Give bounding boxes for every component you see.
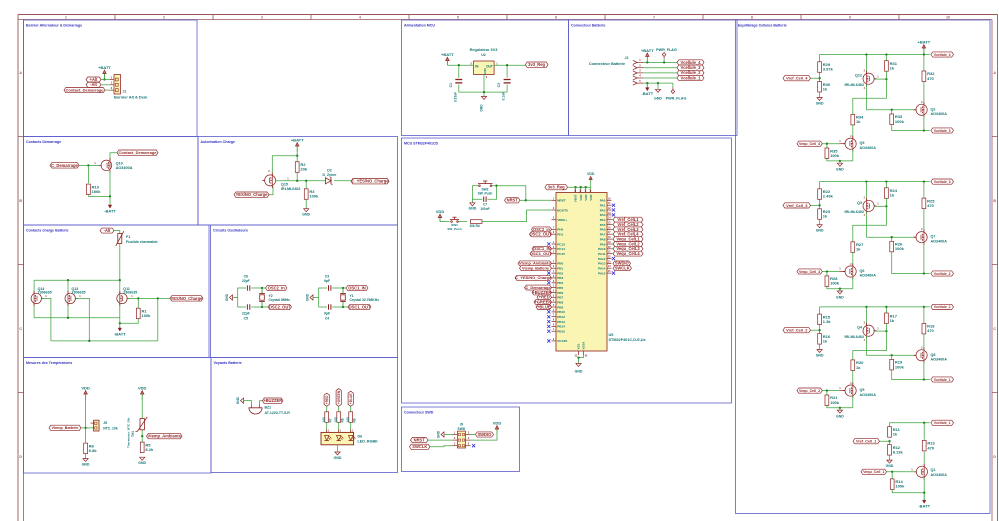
svg-text:100k: 100k (895, 364, 905, 369)
svg-text:PA7: PA7 (600, 233, 606, 237)
svg-text:Contacts charge Batterie: Contacts charge Batterie (26, 229, 69, 233)
svg-text:7306635: 7306635 (38, 291, 52, 295)
svg-text:GND: GND (469, 207, 477, 211)
svg-text:Vref_Cell_3: Vref_Cell_3 (786, 203, 808, 208)
svg-text:100k: 100k (895, 246, 905, 251)
svg-text:+BATT: +BATT (641, 48, 654, 53)
svg-text:A: A (19, 71, 22, 75)
svg-text:+BUZZER: +BUZZER (263, 398, 282, 403)
svg-text:STM32F401C,D-E,Ux: STM32F401C,D-E,Ux (609, 338, 647, 342)
svg-text:Circuits Oscillateurs: Circuits Oscillateurs (213, 229, 248, 233)
svg-text:Q3: Q3 (857, 201, 862, 205)
svg-text:Bornier Alternateur & Démarrag: Bornier Alternateur & Démarrage (26, 24, 82, 28)
svg-text:VSS: VSS (577, 344, 581, 350)
svg-text:GND: GND (302, 213, 310, 217)
svg-text:100: 100 (334, 417, 338, 423)
svg-text:C3: C3 (497, 83, 501, 87)
svg-text:Autorisation Charge: Autorisation Charge (201, 140, 236, 144)
svg-text:PA4: PA4 (600, 218, 606, 222)
svg-text:OUT: OUT (486, 65, 493, 69)
svg-text:PA12: PA12 (598, 257, 606, 261)
svg-text:Vtemp_Batterie: Vtemp_Batterie (52, 426, 79, 430)
svg-text:AO3400A: AO3400A (860, 274, 877, 278)
svg-text:U2: U2 (481, 53, 486, 57)
svg-text:100k: 100k (142, 313, 152, 318)
svg-text:PA15: PA15 (598, 271, 606, 275)
svg-text:C: C (19, 327, 22, 331)
svg-text:Connecteur Batterie: Connecteur Batterie (571, 24, 605, 28)
svg-text:Fusible réarmable: Fusible réarmable (126, 240, 158, 244)
svg-text:PB5: PB5 (557, 286, 563, 290)
svg-text:SW_Push: SW_Push (447, 227, 461, 231)
svg-text:Vequ_Cell_4: Vequ_Cell_4 (799, 142, 820, 146)
svg-text:OSC2_OUT: OSC2_OUT (529, 232, 552, 237)
svg-text:J9: J9 (460, 423, 464, 427)
svg-text:R8: R8 (341, 418, 345, 422)
svg-text:IRLML6402: IRLML6402 (845, 335, 864, 339)
svg-text:AO3400A: AO3400A (860, 146, 877, 150)
svg-text:PA8: PA8 (600, 237, 606, 241)
svg-text:SWCLK: SWCLK (412, 444, 427, 449)
svg-text:PA13: PA13 (598, 262, 606, 266)
svg-text:J8: J8 (103, 421, 107, 425)
svg-text:PB7: PB7 (557, 296, 563, 300)
svg-text:OSC1_OUT: OSC1_OUT (530, 251, 552, 256)
svg-text:1k: 1k (823, 86, 828, 91)
svg-text:+BATT: +BATT (98, 65, 111, 70)
svg-text:100k: 100k (830, 153, 840, 158)
svg-text:Contacts Démarrage: Contacts Démarrage (26, 140, 61, 144)
svg-text:GND: GND (225, 293, 229, 301)
svg-text:Q6: Q6 (860, 269, 865, 273)
svg-text:PA11: PA11 (598, 252, 606, 256)
svg-text:GND: GND (816, 229, 824, 233)
svg-text:D_Zener: D_Zener (322, 173, 337, 177)
svg-text:Q5: Q5 (860, 388, 865, 392)
svg-text:NRST: NRST (557, 199, 566, 203)
svg-text:VDD: VDD (81, 385, 90, 390)
svg-text:Vcellule_4: Vcellule_4 (934, 53, 951, 57)
svg-text:0.33uF: 0.33uF (453, 92, 457, 102)
svg-text:-BATT: -BATT (114, 331, 126, 336)
svg-text:GND: GND (82, 462, 90, 466)
svg-text:+BLUE: +BLUE (349, 394, 353, 405)
svg-text:Vcellule_3: Vcellule_3 (934, 129, 951, 133)
svg-text:1k: 1k (823, 338, 828, 343)
svg-text:3.97k: 3.97k (823, 67, 834, 72)
svg-text:PB12: PB12 (557, 315, 565, 319)
svg-text:7306635: 7306635 (123, 291, 137, 295)
svg-text:PA9: PA9 (600, 242, 606, 246)
svg-text:NRST: NRST (507, 198, 519, 203)
svg-text:GND: GND (836, 168, 844, 172)
svg-text:22pF: 22pF (242, 312, 250, 316)
svg-text:Mesures des Températures: Mesures des Températures (26, 361, 72, 365)
svg-text:GND: GND (236, 396, 240, 404)
svg-text:Connecteur SWD: Connecteur SWD (404, 411, 434, 415)
svg-text:Q8: Q8 (931, 353, 936, 357)
svg-text:VDD: VDD (579, 195, 583, 201)
svg-text:100: 100 (346, 417, 350, 423)
svg-text:GND: GND (437, 430, 441, 438)
svg-text:PA2: PA2 (600, 208, 606, 212)
svg-text:C_Demarrage: C_Demarrage (51, 163, 78, 168)
svg-text:100k: 100k (830, 400, 840, 405)
svg-text:VDD: VDD (589, 195, 593, 201)
svg-text:C_YES/NO_Charge: C_YES/NO_Charge (515, 275, 552, 280)
svg-text:9pF: 9pF (324, 312, 330, 316)
svg-text:PB14: PB14 (557, 325, 565, 329)
svg-text:C3: C3 (325, 275, 329, 279)
svg-text:100k: 100k (895, 484, 905, 489)
svg-text:1k: 1k (856, 119, 861, 124)
svg-text:Vequ_CelL4: Vequ_CelL4 (616, 251, 640, 256)
svg-text:GND: GND (483, 67, 487, 75)
svg-text:PA5: PA5 (600, 223, 606, 227)
svg-text:PB1: PB1 (557, 267, 563, 271)
svg-text:1k: 1k (856, 365, 861, 370)
svg-text:AT-1220-TT-9-R: AT-1220-TT-9-R (265, 411, 291, 415)
svg-text:PA1: PA1 (600, 204, 606, 208)
svg-text:B: B (19, 199, 22, 203)
svg-text:GND: GND (480, 104, 484, 112)
svg-text:PH1: PH1 (557, 233, 563, 237)
svg-text:VDD: VDD (584, 195, 588, 201)
svg-text:NTC_10k: NTC_10k (103, 426, 118, 430)
svg-text:GND: GND (575, 370, 583, 374)
svg-text:Vcellule_1: Vcellule_1 (934, 378, 951, 382)
svg-text:+BATT: +BATT (291, 137, 304, 142)
svg-text:AO3400A: AO3400A (931, 240, 948, 244)
svg-text:PB8: PB8 (557, 300, 563, 304)
svg-text:D6: D6 (358, 435, 363, 439)
svg-text:Q15: Q15 (281, 182, 288, 186)
svg-text:-BATT: -BATT (104, 208, 116, 213)
svg-text:PB13: PB13 (557, 320, 565, 324)
svg-text:0.1uF: 0.1uF (501, 92, 505, 100)
svg-text:+RED: +RED (325, 395, 329, 404)
svg-text:SW_Push: SW_Push (478, 191, 493, 195)
svg-text:VDD: VDD (587, 172, 595, 176)
svg-text:GND: GND (836, 415, 844, 419)
svg-text:PB9: PB9 (557, 305, 563, 309)
svg-text:6: 6 (555, 15, 557, 19)
svg-text:7306635: 7306635 (72, 291, 86, 295)
svg-text:PWR_FLAG: PWR_FLAG (666, 96, 687, 100)
svg-text:PB10: PB10 (557, 310, 565, 314)
svg-text:VREF+: VREF+ (557, 218, 567, 222)
svg-text:PWR_FLAG: PWR_FLAG (656, 48, 677, 52)
svg-text:PC14: PC14 (557, 247, 565, 251)
svg-text:VDD: VDD (436, 209, 445, 214)
svg-text:AO3400A: AO3400A (931, 358, 948, 362)
svg-text:D2: D2 (327, 169, 332, 173)
svg-text:J1: J1 (123, 90, 127, 94)
svg-text:9: 9 (849, 15, 851, 19)
svg-text:D: D (19, 455, 22, 459)
svg-text:Vcellule_1: Vcellule_1 (934, 421, 951, 425)
svg-text:-Alt: -Alt (90, 82, 97, 87)
svg-text:C5: C5 (244, 317, 248, 321)
svg-text:IRLML6402: IRLML6402 (845, 83, 864, 87)
svg-text:Q10: Q10 (116, 162, 123, 166)
svg-text:C7: C7 (483, 203, 487, 207)
svg-text:-BATT: -BATT (918, 504, 930, 509)
svg-text:+GREEN: +GREEN (337, 390, 341, 404)
svg-text:VBAT: VBAT (574, 194, 578, 202)
svg-text:NRST: NRST (414, 438, 426, 443)
svg-text:VDD: VDD (493, 420, 502, 425)
svg-text:Q7: Q7 (931, 235, 936, 239)
svg-text:AO3400A: AO3400A (931, 112, 948, 116)
svg-text:IRLML6402: IRLML6402 (281, 187, 300, 191)
svg-text:BZ1: BZ1 (265, 406, 272, 410)
svg-text:GND: GND (816, 101, 824, 105)
svg-text:Alimentation MCU: Alimentation MCU (404, 24, 435, 28)
svg-text:GND: GND (306, 293, 310, 301)
svg-text:7: 7 (653, 15, 655, 19)
svg-text:A: A (993, 71, 996, 75)
svg-text:Equilibrage Cellules Batterie: Equilibrage Cellules Batterie (738, 24, 787, 28)
svg-text:YES/NO_Charge: YES/NO_Charge (171, 296, 204, 301)
svg-text:D: D (993, 455, 996, 459)
svg-text:F1: F1 (126, 235, 130, 239)
svg-text:1.3k: 1.3k (823, 319, 832, 324)
svg-text:Connecteur Batterie: Connecteur Batterie (589, 62, 625, 66)
svg-text:1k: 1k (890, 318, 895, 323)
svg-text:5: 5 (457, 15, 459, 19)
svg-text:3v3_Reg: 3v3_Reg (548, 185, 565, 190)
svg-text:2: 2 (163, 15, 165, 19)
svg-text:-BATT: -BATT (641, 91, 653, 96)
svg-text:Bornier Alt & Dem: Bornier Alt & Dem (114, 95, 148, 100)
svg-text:Q9: Q9 (860, 141, 865, 145)
svg-text:10: 10 (946, 15, 950, 19)
svg-text:PB2: PB2 (557, 271, 563, 275)
svg-text:Vequ_Cell_1: Vequ_Cell_1 (863, 470, 884, 474)
svg-text:8.2k: 8.2k (145, 447, 154, 452)
svg-text:Crystal 8MHz: Crystal 8MHz (269, 298, 291, 302)
svg-text:PH0: PH0 (557, 228, 563, 232)
svg-text:Vcellule_3: Vcellule_3 (934, 180, 951, 184)
svg-text:PB4: PB4 (557, 281, 563, 285)
svg-text:Voyants Batterie: Voyants Batterie (214, 361, 242, 365)
svg-text:Contact_Demarrage: Contact_Demarrage (65, 87, 104, 92)
svg-text:AO3400A: AO3400A (116, 166, 133, 170)
svg-text:OSC1_IN: OSC1_IN (348, 285, 366, 290)
svg-text:3v3_Reg: 3v3_Reg (528, 62, 545, 67)
svg-text:R7: R7 (329, 418, 333, 422)
svg-text:BOOT0: BOOT0 (557, 208, 568, 212)
svg-text:+BATT: +BATT (918, 39, 931, 44)
svg-text:OSC2_in: OSC2_in (268, 285, 286, 290)
svg-text:OSC1_OUT: OSC1_OUT (348, 304, 371, 309)
svg-text:1k: 1k (856, 247, 861, 252)
svg-text:GND: GND (334, 456, 342, 460)
svg-text:GND: GND (816, 353, 824, 357)
svg-text:1k: 1k (890, 193, 895, 198)
svg-text:Vtemp_Ambiante: Vtemp_Ambiante (147, 434, 181, 439)
svg-text:Crystal 32.768KHz: Crystal 32.768KHz (350, 298, 380, 302)
svg-text:9pF: 9pF (324, 279, 330, 283)
svg-text:PC13: PC13 (557, 242, 565, 246)
svg-text:20k: 20k (300, 167, 307, 172)
svg-text:2.49k: 2.49k (823, 194, 834, 199)
svg-text:1k: 1k (890, 66, 895, 71)
svg-text:PB6: PB6 (557, 291, 563, 295)
svg-text:470: 470 (927, 445, 934, 450)
svg-text:SWCLK: SWCLK (615, 266, 630, 271)
svg-text:OSC2_OUT: OSC2_OUT (269, 304, 292, 309)
svg-text:100k: 100k (92, 189, 102, 194)
svg-text:IRLML6402: IRLML6402 (845, 210, 864, 214)
svg-text:C1: C1 (449, 83, 453, 87)
svg-text:Vcellule_2: Vcellule_2 (934, 305, 951, 309)
svg-text:GND: GND (886, 464, 894, 468)
svg-text:LED_RGBK: LED_RGBK (358, 440, 379, 444)
svg-text:100nF: 100nF (480, 207, 489, 211)
svg-text:470: 470 (927, 328, 934, 333)
svg-text:470: 470 (927, 203, 934, 208)
svg-text:-Alt: -Alt (104, 228, 111, 233)
svg-text:10k R4: 10k R4 (469, 224, 480, 228)
svg-text:PA0: PA0 (600, 199, 606, 203)
svg-text:Vref_Cell_1: Vref_Cell_1 (856, 440, 876, 444)
svg-text:R9: R9 (353, 418, 357, 422)
svg-text:Vtemp_Ambiante: Vtemp_Ambiante (519, 261, 551, 266)
svg-text:AO3400A: AO3400A (931, 473, 948, 477)
svg-text:8.13k: 8.13k (893, 450, 904, 455)
svg-text:PB3: PB3 (557, 276, 563, 280)
svg-text:PB0: PB0 (557, 262, 563, 266)
svg-text:VSSA: VSSA (582, 341, 586, 350)
svg-text:Regulateur 3V3: Regulateur 3V3 (470, 48, 498, 52)
svg-text:+Alt: +Alt (90, 77, 98, 82)
svg-text:22pF: 22pF (242, 279, 250, 283)
svg-text:GND: GND (654, 96, 662, 100)
svg-text:YES/NO_Charge: YES/NO_Charge (236, 192, 269, 197)
svg-text:SWD: SWD (458, 427, 466, 431)
svg-text:C_YES/NO_Charge: C_YES/NO_Charge (351, 179, 389, 184)
svg-text:1: 1 (65, 15, 67, 19)
svg-text:SWDIO: SWDIO (477, 432, 492, 437)
svg-text:6.8k: 6.8k (89, 448, 98, 453)
svg-text:100k: 100k (895, 119, 905, 124)
svg-text:J2: J2 (625, 56, 629, 60)
svg-text:+BATT: +BATT (441, 52, 454, 57)
svg-text:PA3: PA3 (600, 213, 606, 217)
svg-text:GND: GND (836, 295, 844, 299)
svg-text:Q1: Q1 (931, 468, 936, 472)
svg-text:1k: 1k (893, 432, 898, 437)
svg-text:VCAP1: VCAP1 (557, 339, 568, 343)
svg-text:100k: 100k (309, 194, 319, 199)
svg-text:8: 8 (751, 15, 753, 19)
svg-text:Thermistor_NTC 10k: Thermistor_NTC 10k (127, 417, 131, 448)
svg-text:4: 4 (359, 15, 361, 19)
svg-text:Vcellule_2: Vcellule_2 (934, 272, 951, 276)
svg-text:100: 100 (322, 417, 326, 423)
svg-text:Contact_Demarrage: Contact_Demarrage (118, 150, 157, 155)
svg-text:3: 3 (261, 15, 263, 19)
svg-text:Q2: Q2 (931, 107, 936, 111)
svg-text:1k: 1k (823, 214, 828, 219)
svg-text:C6: C6 (244, 275, 248, 279)
svg-text:Vtemp_Batterie: Vtemp_Batterie (522, 267, 549, 271)
svg-text:Vequ_Cell_2: Vequ_Cell_2 (799, 389, 820, 393)
svg-text:PC15: PC15 (557, 252, 565, 256)
svg-text:B: B (993, 199, 996, 203)
svg-text:Vref_Cell_4: Vref_Cell_4 (786, 76, 808, 81)
svg-text:Q12: Q12 (855, 74, 862, 78)
svg-text:PA14: PA14 (598, 267, 606, 271)
svg-text:Vref_Cell_2: Vref_Cell_2 (786, 328, 808, 333)
svg-text:GND: GND (138, 461, 146, 465)
svg-text:TH1: TH1 (131, 431, 135, 437)
svg-text:MCU STM32F401CD: MCU STM32F401CD (404, 142, 439, 146)
svg-text:PA6: PA6 (600, 228, 606, 232)
svg-text:U5: U5 (609, 333, 614, 337)
svg-text:AO3400A: AO3400A (860, 393, 877, 397)
svg-text:100k: 100k (830, 281, 840, 286)
svg-text:Vequ_Cell_3: Vequ_Cell_3 (799, 270, 820, 274)
svg-text:C: C (993, 327, 996, 331)
svg-text:Vcellule_1: Vcellule_1 (680, 75, 701, 80)
svg-text:PA10: PA10 (598, 247, 606, 251)
svg-text:C4: C4 (325, 317, 329, 321)
svg-text:470: 470 (927, 76, 934, 81)
svg-text:+BLUE: +BLUE (537, 304, 551, 309)
svg-text:PB15: PB15 (557, 330, 565, 334)
svg-text:VDD: VDD (138, 385, 147, 390)
